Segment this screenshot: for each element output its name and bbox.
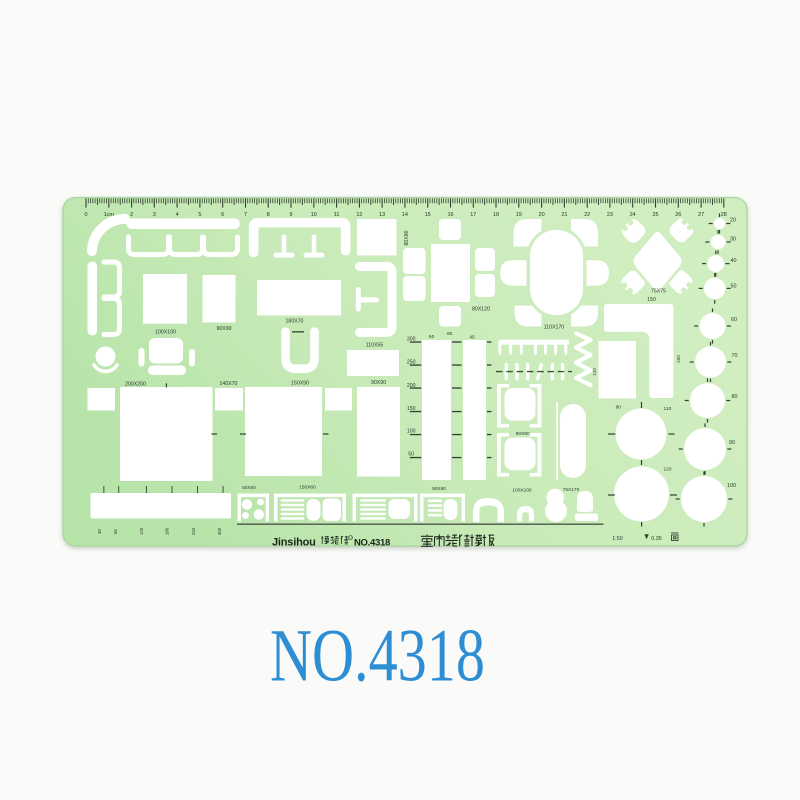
svg-text:110: 110 — [664, 406, 672, 412]
svg-text:0: 0 — [84, 212, 87, 218]
svg-text:7: 7 — [244, 212, 247, 218]
svg-text:300: 300 — [217, 527, 222, 535]
svg-text:110X170: 110X170 — [544, 324, 564, 330]
svg-text:75X75: 75X75 — [651, 289, 666, 295]
svg-text:30: 30 — [730, 237, 736, 243]
svg-text:90X60: 90X60 — [432, 486, 446, 492]
svg-text:60: 60 — [113, 529, 118, 534]
svg-text:150X60: 150X60 — [299, 485, 316, 491]
svg-text:26: 26 — [675, 212, 681, 218]
svg-text:200X200: 200X200 — [125, 382, 146, 388]
svg-text:15: 15 — [425, 212, 431, 218]
svg-text:60: 60 — [429, 334, 435, 340]
svg-text:11: 11 — [334, 212, 340, 218]
svg-text:NO.4318: NO.4318 — [270, 613, 485, 697]
svg-text:70: 70 — [732, 353, 738, 359]
svg-text:80X80: 80X80 — [404, 230, 410, 245]
svg-text:150X90: 150X90 — [291, 381, 309, 387]
svg-text:20: 20 — [730, 218, 736, 224]
svg-text:60: 60 — [731, 317, 737, 323]
svg-text:120: 120 — [139, 527, 144, 535]
svg-text:60: 60 — [447, 331, 453, 337]
svg-text:200: 200 — [407, 383, 416, 389]
svg-text:13: 13 — [379, 212, 385, 218]
svg-text:3: 3 — [153, 212, 156, 218]
svg-text:100X100: 100X100 — [512, 488, 532, 494]
svg-text:180X70: 180X70 — [286, 318, 304, 324]
svg-text:45: 45 — [469, 335, 475, 341]
svg-text:50: 50 — [408, 452, 414, 458]
svg-text:22: 22 — [584, 212, 590, 218]
svg-text:90X90: 90X90 — [516, 431, 530, 437]
svg-text:100: 100 — [407, 429, 416, 435]
svg-text:80: 80 — [732, 394, 738, 400]
svg-text:120: 120 — [592, 368, 597, 376]
svg-text:100X100: 100X100 — [155, 330, 176, 336]
svg-text:140X70: 140X70 — [220, 381, 238, 387]
svg-text:150: 150 — [647, 297, 656, 303]
svg-text:180: 180 — [164, 527, 169, 535]
svg-text:27: 27 — [698, 212, 704, 218]
svg-text:1cm: 1cm — [104, 212, 115, 218]
svg-text:90X90: 90X90 — [216, 326, 231, 332]
svg-text:16: 16 — [447, 212, 453, 218]
svg-text:12: 12 — [356, 212, 362, 218]
svg-text:28: 28 — [721, 212, 727, 218]
svg-text:10: 10 — [311, 212, 317, 218]
svg-text:80: 80 — [616, 405, 622, 411]
svg-text:110X55: 110X55 — [366, 343, 384, 349]
svg-text:9: 9 — [289, 212, 292, 218]
svg-text:20: 20 — [539, 212, 545, 218]
svg-text:21: 21 — [561, 212, 567, 218]
svg-text:0.35: 0.35 — [651, 536, 662, 542]
svg-text:50: 50 — [731, 284, 737, 290]
svg-text:1:50: 1:50 — [612, 536, 623, 542]
svg-text:80X120: 80X120 — [472, 306, 490, 312]
svg-text:6: 6 — [221, 212, 224, 218]
svg-text:250: 250 — [407, 359, 416, 365]
svg-text:75X170: 75X170 — [563, 487, 580, 493]
svg-text:25: 25 — [652, 212, 658, 218]
svg-text:23: 23 — [607, 212, 613, 218]
svg-text:90X90: 90X90 — [371, 380, 386, 386]
svg-text:Jinsihou: Jinsihou — [272, 537, 316, 549]
svg-text:150: 150 — [407, 406, 416, 412]
svg-text:5: 5 — [198, 212, 201, 218]
svg-text:240: 240 — [191, 527, 196, 535]
svg-text:120: 120 — [663, 467, 671, 473]
svg-text:60X60: 60X60 — [242, 485, 256, 491]
svg-text:4: 4 — [176, 212, 179, 218]
svg-text:90: 90 — [729, 440, 735, 446]
svg-text:30: 30 — [97, 529, 102, 534]
svg-text:100: 100 — [727, 483, 736, 489]
svg-text:300: 300 — [407, 337, 416, 343]
svg-text:18: 18 — [493, 212, 499, 218]
svg-text:8: 8 — [267, 212, 270, 218]
svg-text:40: 40 — [731, 258, 737, 264]
svg-text:17: 17 — [470, 212, 476, 218]
svg-text:NO.4318: NO.4318 — [354, 538, 390, 549]
svg-text:19: 19 — [516, 212, 522, 218]
svg-text:24: 24 — [630, 212, 636, 218]
svg-text:200: 200 — [676, 355, 681, 363]
svg-text:14: 14 — [402, 212, 408, 218]
svg-text:2: 2 — [130, 212, 133, 218]
